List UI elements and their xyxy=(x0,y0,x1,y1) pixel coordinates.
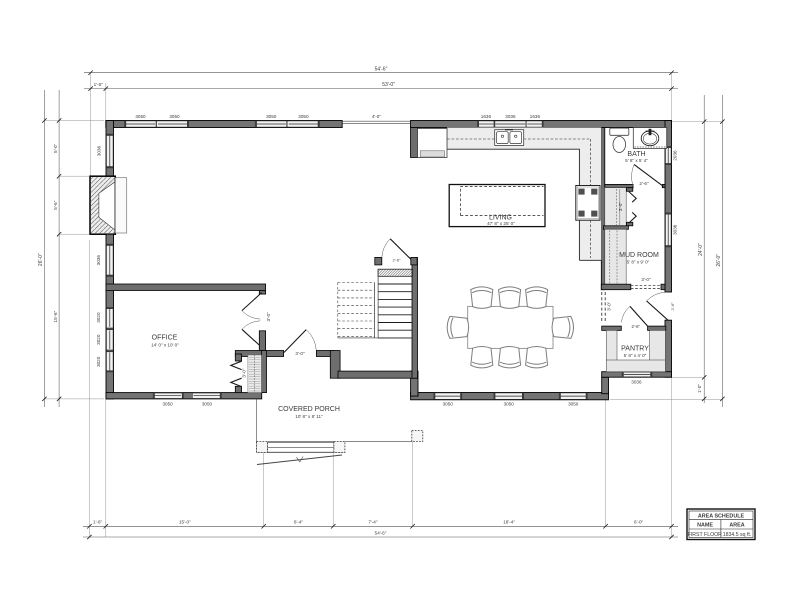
svg-text:6'-4": 6'-4" xyxy=(294,520,304,525)
svg-text:26'-0": 26'-0" xyxy=(38,253,44,266)
svg-text:3036: 3036 xyxy=(96,255,101,266)
svg-text:3'-0": 3'-0" xyxy=(618,202,623,212)
svg-text:3050: 3050 xyxy=(298,114,309,119)
svg-text:1636: 1636 xyxy=(481,114,492,119)
svg-text:24'-0": 24'-0" xyxy=(698,243,704,256)
svg-text:3050: 3050 xyxy=(443,402,454,407)
svg-text:3050: 3050 xyxy=(135,114,146,119)
svg-text:3050: 3050 xyxy=(162,401,173,406)
svg-text:53'-0": 53'-0" xyxy=(382,82,395,88)
svg-text:OFFICE: OFFICE xyxy=(152,335,178,342)
svg-text:2'-6": 2'-6" xyxy=(632,324,641,329)
svg-text:5' 8" x 5' 4": 5' 8" x 5' 4" xyxy=(625,158,648,163)
svg-text:1'-6": 1'-6" xyxy=(93,520,103,525)
svg-text:1834.5 sq ft.: 1834.5 sq ft. xyxy=(723,532,752,538)
svg-text:3050: 3050 xyxy=(568,402,579,407)
svg-text:3020: 3020 xyxy=(96,334,101,345)
svg-text:2036: 2036 xyxy=(672,150,677,161)
svg-text:PANTRY: PANTRY xyxy=(621,346,649,353)
svg-text:5'-6": 5'-6" xyxy=(53,200,58,210)
svg-text:18'-4": 18'-4" xyxy=(503,520,515,525)
svg-text:COVERED PORCH: COVERED PORCH xyxy=(278,406,340,413)
svg-text:3050: 3050 xyxy=(266,114,277,119)
svg-text:3050: 3050 xyxy=(504,402,515,407)
svg-text:3'-0": 3'-0" xyxy=(242,368,247,378)
svg-text:7'-4": 7'-4" xyxy=(368,520,378,525)
svg-text:3036: 3036 xyxy=(672,224,677,235)
svg-text:3020: 3020 xyxy=(96,312,101,323)
svg-text:3050: 3050 xyxy=(169,114,180,119)
svg-text:AREA: AREA xyxy=(729,523,744,529)
svg-text:15'-0": 15'-0" xyxy=(179,520,191,525)
svg-text:3050: 3050 xyxy=(202,401,213,406)
svg-text:14' 0" x 10' 0": 14' 0" x 10' 0" xyxy=(151,343,179,348)
svg-text:1'-6": 1'-6" xyxy=(94,82,104,87)
svg-text:1636: 1636 xyxy=(530,114,541,119)
svg-text:FIRST FLOOR: FIRST FLOOR xyxy=(688,532,722,538)
svg-text:2'-6": 2'-6" xyxy=(393,257,402,262)
svg-text:2'-6": 2'-6" xyxy=(670,302,675,311)
svg-text:10' 8" x 8' 11": 10' 8" x 8' 11" xyxy=(295,414,323,419)
svg-text:1'-0": 1'-0" xyxy=(697,384,702,393)
svg-text:3'-0": 3'-0" xyxy=(295,351,305,356)
svg-text:6'-0": 6'-0" xyxy=(634,520,644,525)
svg-text:4'-0": 4'-0" xyxy=(372,114,382,119)
svg-text:47' 8" x 25' 0": 47' 8" x 25' 0" xyxy=(487,221,515,226)
svg-text:3'-0": 3'-0" xyxy=(266,312,271,322)
svg-text:NAME: NAME xyxy=(697,523,713,529)
svg-text:5' 8" x 4' 0": 5' 8" x 4' 0" xyxy=(624,353,647,358)
svg-text:BATH: BATH xyxy=(627,151,645,158)
svg-text:15'-6": 15'-6" xyxy=(53,310,58,322)
svg-text:3'-0": 3'-0" xyxy=(607,301,612,311)
svg-text:54'-6": 54'-6" xyxy=(375,66,388,72)
svg-text:2'-6": 2'-6" xyxy=(639,181,649,186)
svg-text:3036: 3036 xyxy=(505,114,516,119)
svg-text:AREA SCHEDULE: AREA SCHEDULE xyxy=(698,513,745,519)
svg-text:5'-0": 5'-0" xyxy=(53,143,58,153)
svg-text:5' 8" x 9' 0": 5' 8" x 9' 0" xyxy=(627,259,650,264)
svg-text:26'-0": 26'-0" xyxy=(716,254,722,267)
svg-text:3020: 3020 xyxy=(96,356,101,367)
svg-text:3036: 3036 xyxy=(97,145,102,156)
svg-text:MUD ROOM: MUD ROOM xyxy=(619,252,659,259)
svg-text:54'-6": 54'-6" xyxy=(375,531,387,536)
svg-text:3'-0": 3'-0" xyxy=(641,277,651,282)
svg-text:3036: 3036 xyxy=(631,380,642,385)
